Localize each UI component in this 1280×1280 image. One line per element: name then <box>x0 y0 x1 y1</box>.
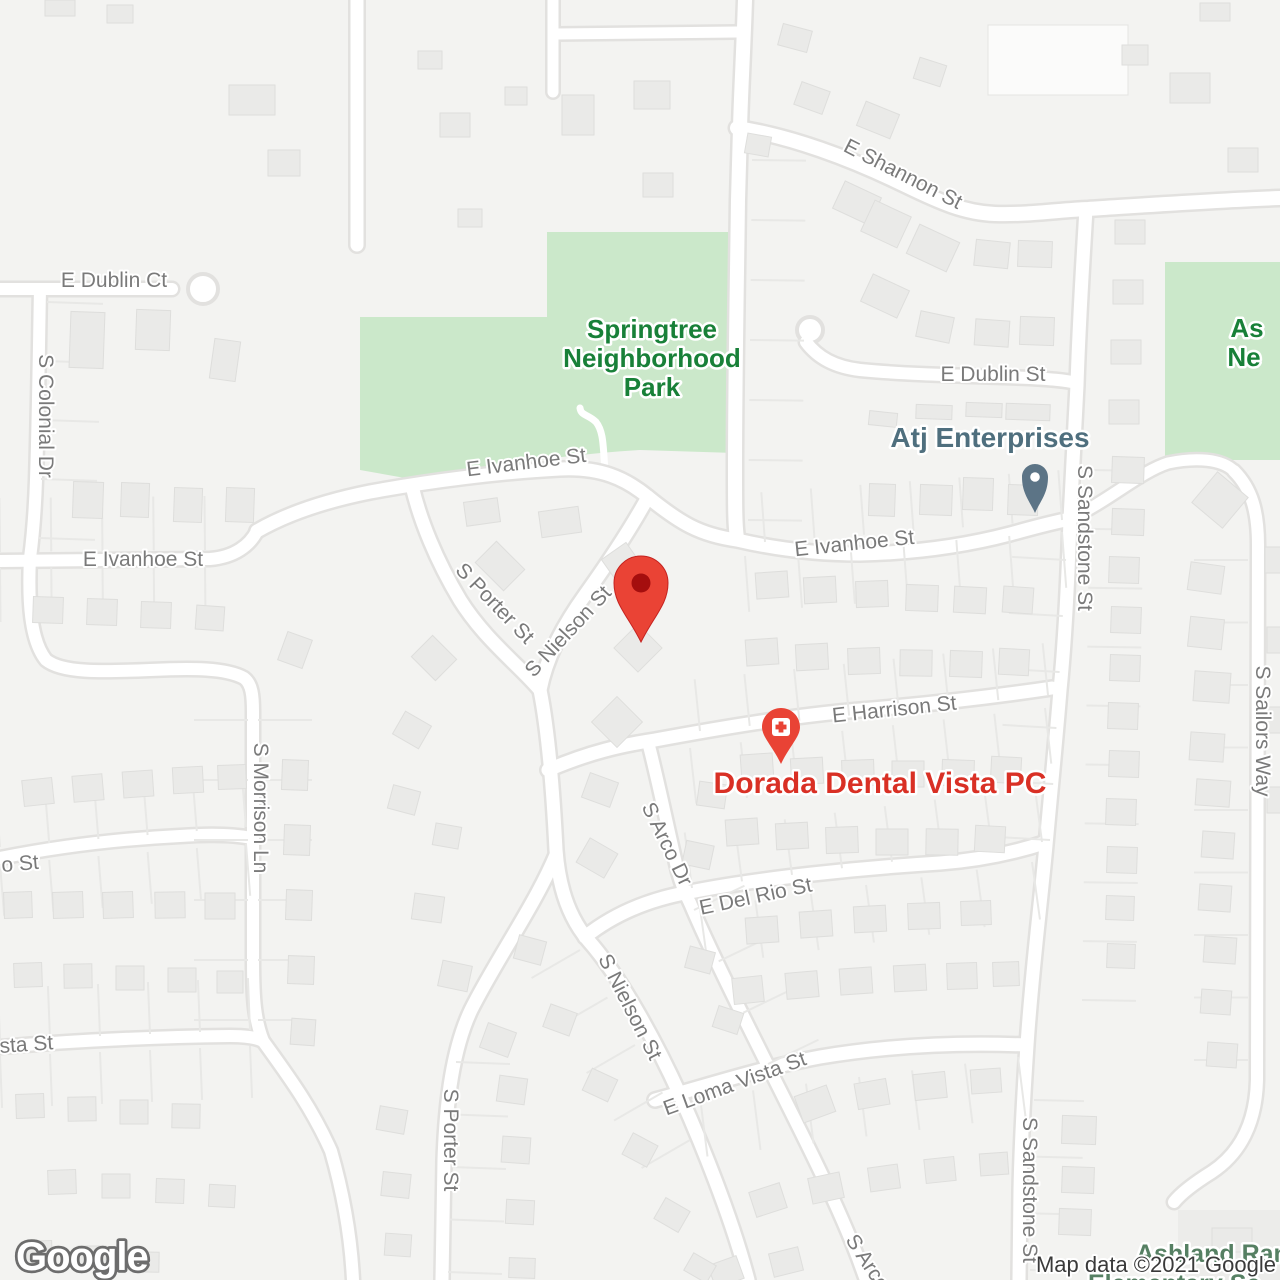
building <box>68 1097 96 1121</box>
building <box>906 584 939 611</box>
street-label-s-sandstone-st-upper: S Sandstone St <box>1073 465 1096 611</box>
building <box>438 960 473 992</box>
building <box>1109 400 1139 424</box>
building <box>1059 1208 1092 1235</box>
building <box>854 1078 890 1109</box>
building <box>229 85 275 115</box>
building <box>281 760 308 791</box>
building <box>974 319 1010 347</box>
street-label-sta-st-partial: sta St <box>0 1031 54 1058</box>
building <box>384 1233 411 1257</box>
building <box>1189 732 1225 762</box>
building <box>72 481 103 518</box>
building <box>1107 944 1136 969</box>
building <box>195 605 225 631</box>
map-canvas[interactable]: E Dublin Ct S Colonial Dr E Ivanhoe St E… <box>0 0 1280 1280</box>
building <box>509 1258 536 1279</box>
building <box>1106 798 1137 825</box>
building <box>538 506 581 537</box>
building <box>745 638 779 666</box>
street-label-s-sandstone-st-lower: S Sandstone St <box>1018 1117 1041 1263</box>
building <box>168 968 196 992</box>
building <box>1206 1042 1238 1068</box>
building <box>953 586 986 614</box>
building <box>1020 316 1055 345</box>
building <box>1200 3 1230 21</box>
building <box>974 239 1011 268</box>
building <box>775 822 808 850</box>
building <box>418 51 442 69</box>
building <box>853 905 886 933</box>
building <box>381 1172 411 1199</box>
building <box>1002 586 1034 614</box>
building <box>856 580 889 607</box>
building <box>209 338 240 381</box>
building <box>1122 45 1148 65</box>
building <box>1106 896 1135 921</box>
building <box>1107 846 1138 873</box>
building <box>1110 654 1141 681</box>
google-logo[interactable]: Google <box>16 1235 148 1279</box>
building <box>285 890 312 921</box>
building <box>116 966 144 990</box>
building <box>913 1071 948 1100</box>
building <box>1203 936 1237 964</box>
building <box>1228 148 1258 172</box>
poi-atj-enterprises-label[interactable]: Atj Enterprises <box>890 422 1089 453</box>
building <box>283 825 310 856</box>
street-label-s-colonial-dr: S Colonial Dr <box>34 354 57 478</box>
building <box>48 1170 77 1195</box>
building <box>268 150 300 176</box>
park-label-line2: Neighborhood <box>563 343 741 373</box>
building <box>562 95 594 135</box>
building <box>966 402 1002 417</box>
building <box>120 1100 148 1124</box>
building <box>1195 779 1231 807</box>
building <box>1111 606 1142 633</box>
building <box>505 1199 534 1224</box>
building <box>993 962 1020 987</box>
building <box>14 963 43 988</box>
building <box>496 1075 527 1105</box>
building <box>53 891 84 918</box>
building <box>799 910 833 938</box>
building <box>1018 240 1053 267</box>
building <box>970 1068 1002 1094</box>
building <box>4 892 33 919</box>
building <box>440 113 470 137</box>
building <box>1062 1166 1095 1193</box>
building <box>218 765 247 790</box>
building <box>643 173 673 197</box>
building <box>1111 340 1141 364</box>
building <box>1170 73 1210 103</box>
building <box>795 643 828 671</box>
building <box>916 404 952 419</box>
building <box>411 893 444 923</box>
building <box>926 829 958 856</box>
building <box>1006 403 1051 421</box>
building <box>1115 220 1145 244</box>
building <box>141 601 172 628</box>
street-label-s-sailors-way: S Sailors Way <box>1251 665 1274 797</box>
street-label-e-dublin-ct: E Dublin Ct <box>61 269 167 292</box>
building <box>785 971 819 1000</box>
building <box>33 596 64 623</box>
building <box>501 1136 531 1164</box>
building <box>1062 1115 1097 1144</box>
building <box>172 766 203 794</box>
northeast-park-label[interactable]: As Ne <box>1227 313 1263 372</box>
building <box>288 956 315 985</box>
building <box>22 778 55 807</box>
building <box>505 87 527 105</box>
building <box>172 1104 200 1128</box>
building <box>1109 556 1140 583</box>
building <box>900 650 932 677</box>
building <box>290 1018 316 1046</box>
building <box>1108 702 1139 729</box>
building <box>87 598 118 625</box>
building <box>1201 831 1235 859</box>
map-svg[interactable]: E Dublin Ct S Colonial Dr E Ivanhoe St E… <box>0 0 1280 1280</box>
building <box>893 964 926 992</box>
park-ne-label-line1: As <box>1230 313 1263 343</box>
building <box>908 902 941 929</box>
building <box>1193 671 1231 703</box>
building <box>1112 508 1145 535</box>
building <box>755 571 789 599</box>
building <box>803 576 836 604</box>
building <box>217 971 243 993</box>
building <box>432 823 461 849</box>
street-label-o-st-partial: o St <box>0 851 39 877</box>
building <box>868 484 895 517</box>
building <box>867 1164 900 1192</box>
poi-dorada-dental-label[interactable]: Dorada Dental Vista PC <box>714 767 1047 800</box>
park-label-line1: Springtree <box>587 314 717 344</box>
building <box>1265 547 1280 573</box>
building <box>826 826 859 853</box>
building <box>998 648 1029 676</box>
building <box>1200 989 1232 1015</box>
building <box>69 311 105 368</box>
building <box>634 81 670 109</box>
building <box>974 825 1005 853</box>
building <box>72 774 104 803</box>
building <box>205 893 235 919</box>
building <box>876 829 908 855</box>
building <box>107 5 133 23</box>
building <box>962 477 993 510</box>
building <box>947 962 978 989</box>
building <box>64 964 92 988</box>
building <box>1188 616 1225 649</box>
building <box>208 1184 235 1207</box>
building <box>732 976 765 1005</box>
building <box>122 770 154 798</box>
building <box>848 647 881 674</box>
building <box>156 1179 185 1204</box>
building <box>45 0 75 16</box>
building <box>1112 456 1145 483</box>
building <box>173 488 202 523</box>
building <box>745 916 779 944</box>
building <box>225 488 254 523</box>
building <box>744 133 771 157</box>
building <box>120 483 149 518</box>
commercial-parcel <box>988 25 1128 95</box>
street-label-s-porter-st-lower: S Porter St <box>439 1089 462 1192</box>
building <box>839 967 873 995</box>
building <box>135 309 170 350</box>
building <box>979 1152 1008 1176</box>
building <box>950 650 983 677</box>
street-label-e-ivanhoe-st-west: E Ivanhoe St <box>83 548 203 571</box>
building <box>458 209 482 227</box>
northeast-park-area <box>1165 262 1280 460</box>
park-label-line3: Park <box>624 372 681 402</box>
street-label-s-morrison-ln: S Morrison Ln <box>249 743 272 874</box>
building <box>1187 562 1225 594</box>
building <box>155 892 185 919</box>
building <box>102 1174 130 1198</box>
building <box>1198 884 1232 912</box>
building <box>1267 627 1280 653</box>
street-label-e-dublin-st: E Dublin St <box>940 363 1045 386</box>
building <box>924 1156 956 1183</box>
building <box>961 900 992 925</box>
building <box>725 818 759 846</box>
building <box>463 498 500 526</box>
park-ne-label-line2: Ne <box>1227 342 1260 372</box>
map-attribution: Map data ©2021 Google <box>1036 1252 1276 1277</box>
building <box>1113 280 1143 304</box>
building <box>376 1106 408 1134</box>
building <box>103 891 134 918</box>
building <box>16 1094 45 1119</box>
building <box>919 484 952 515</box>
building <box>1109 750 1140 777</box>
